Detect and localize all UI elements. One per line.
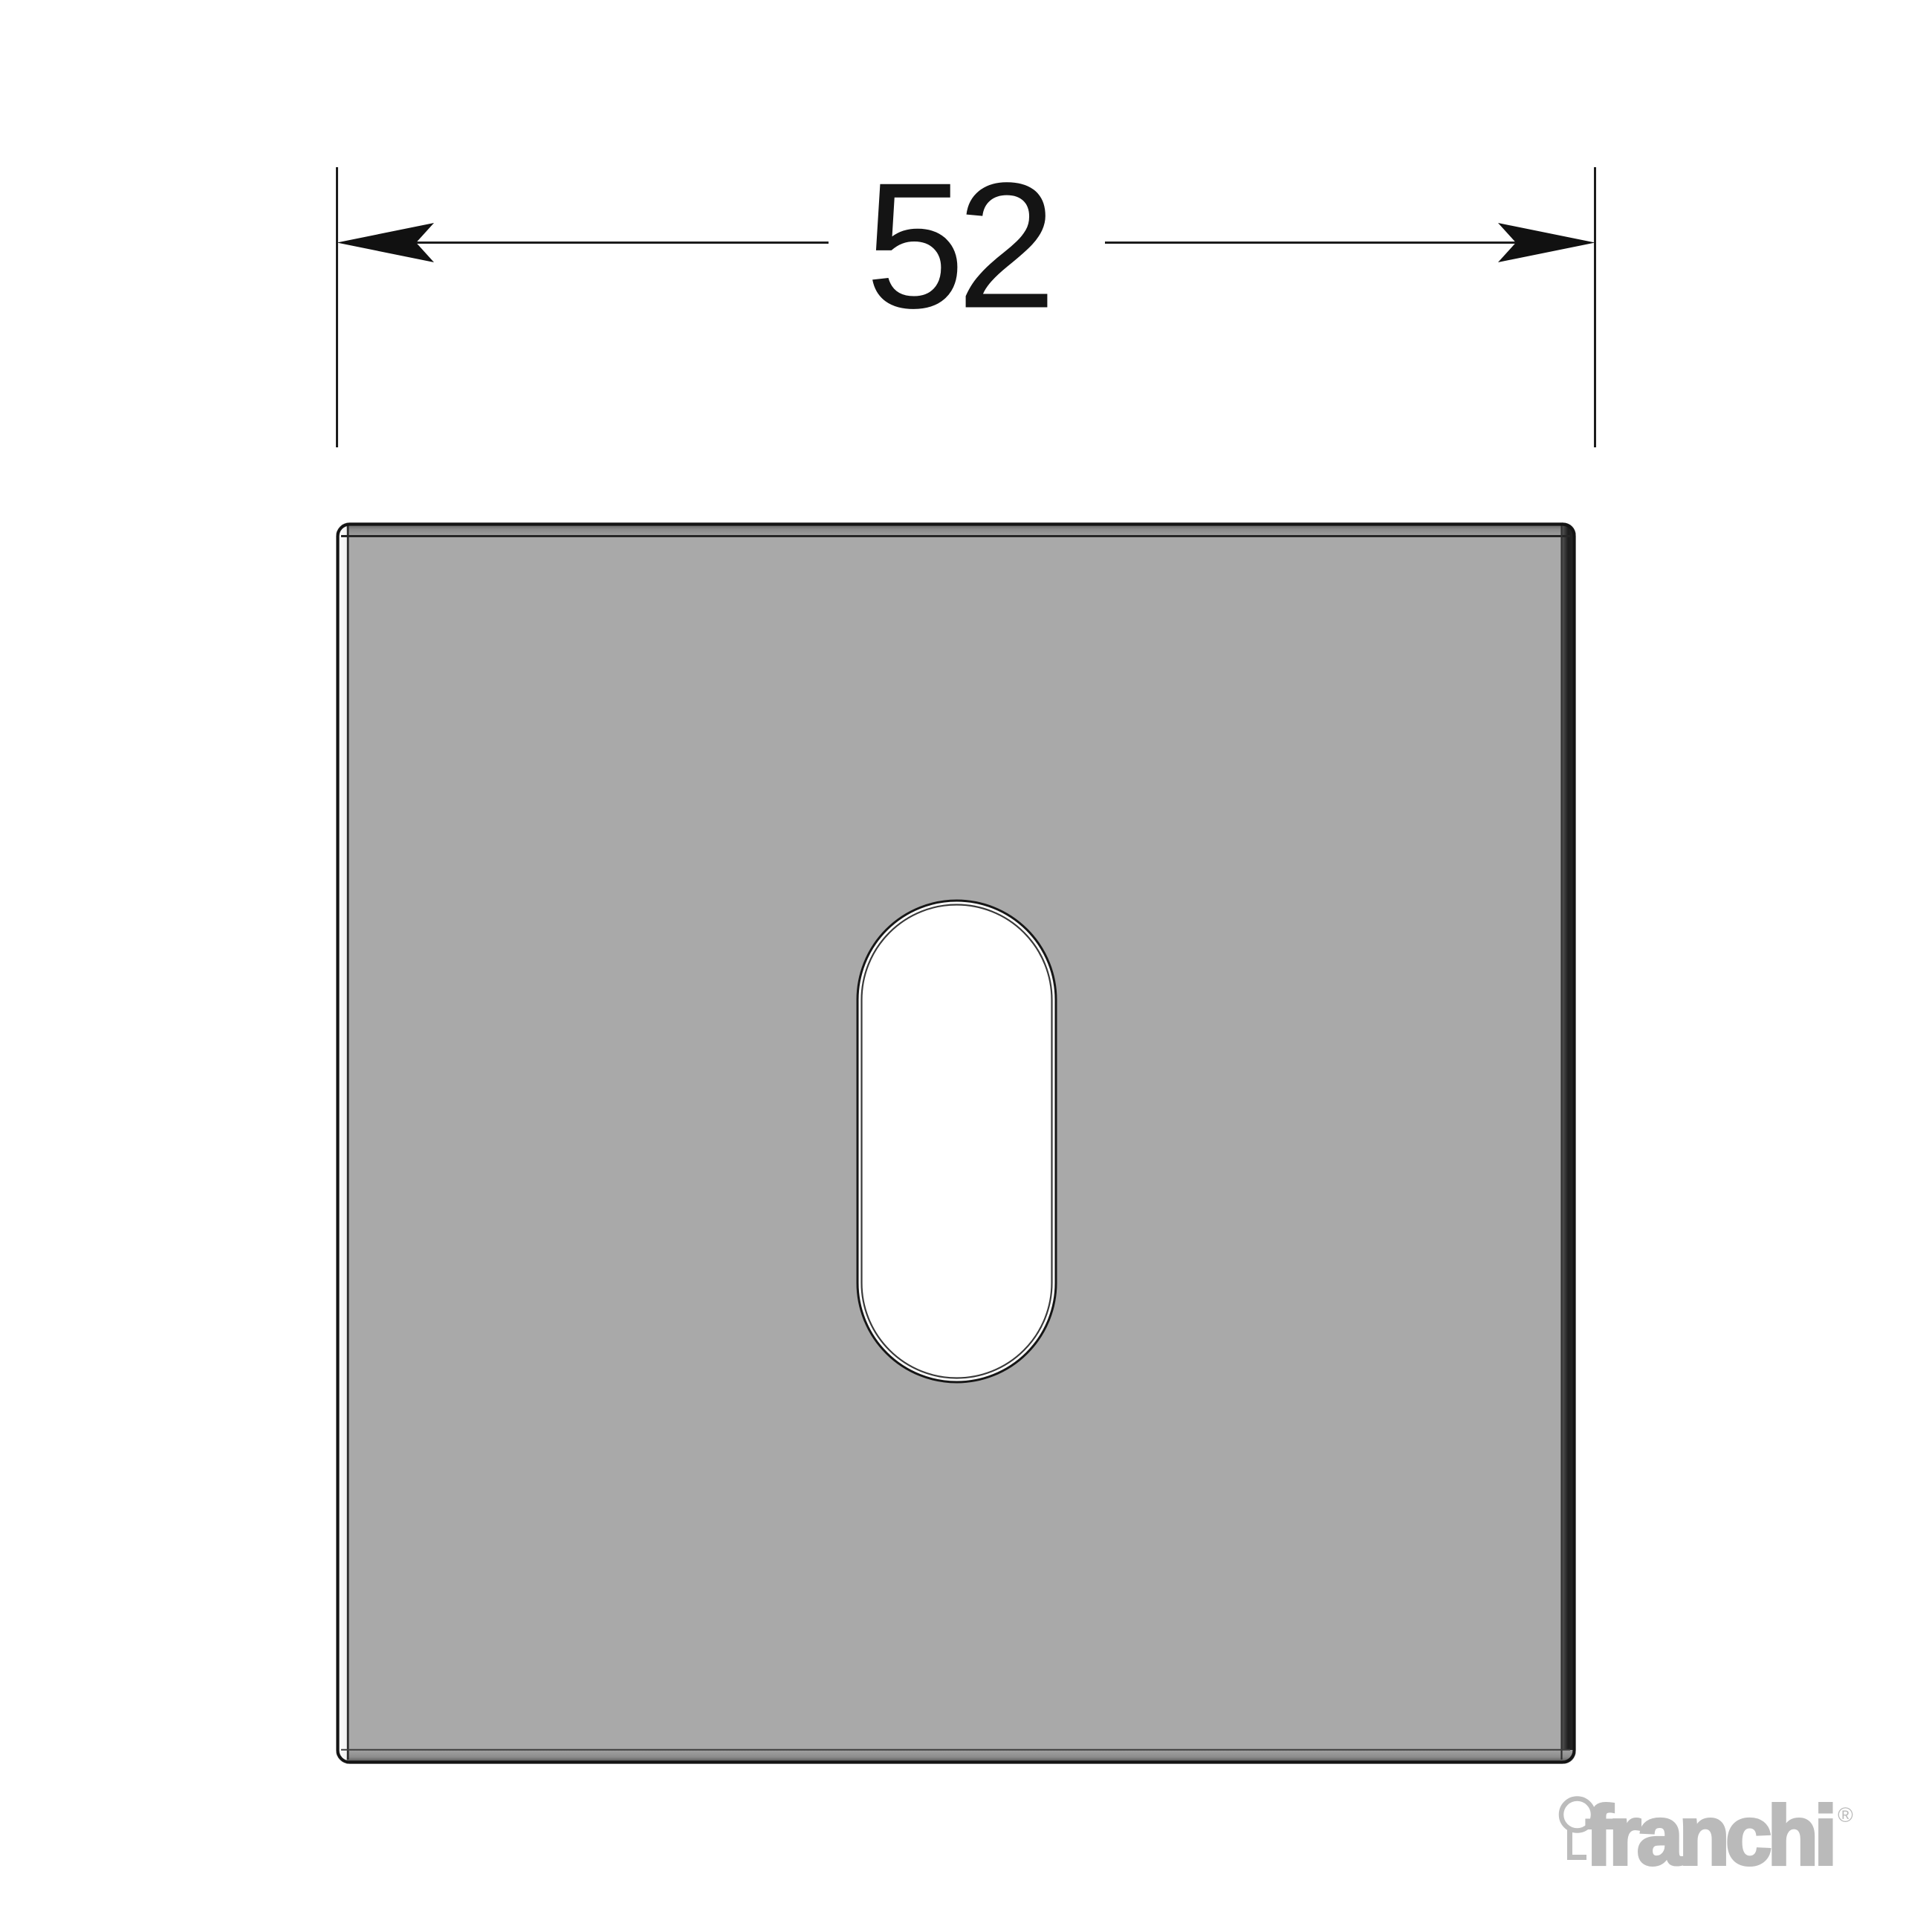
svg-text:®: ® xyxy=(1838,1803,1853,1826)
svg-text:franchi: franchi xyxy=(1586,1789,1833,1882)
svg-text:52: 52 xyxy=(865,146,1048,346)
